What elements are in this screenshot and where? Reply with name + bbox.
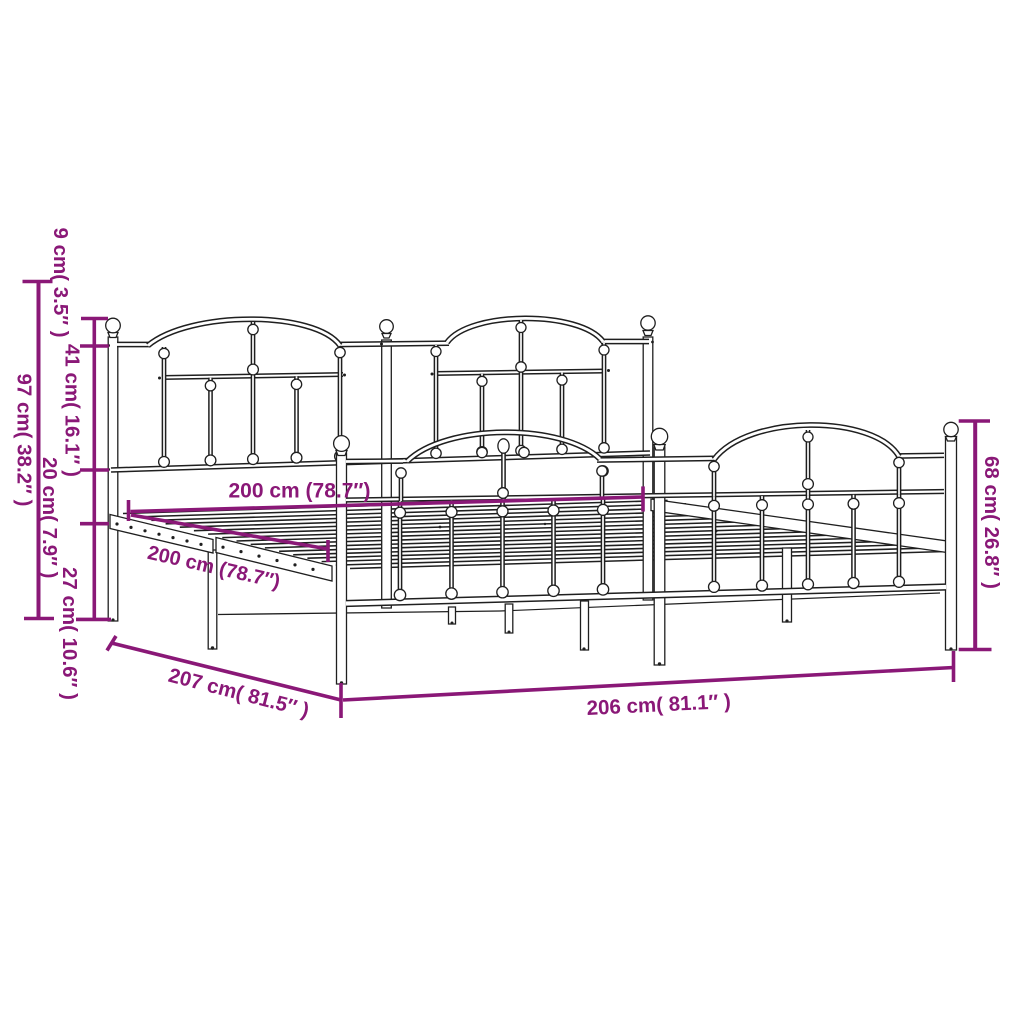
svg-text:41 cm( 16.1″ ): 41 cm( 16.1″ ) [61,344,84,477]
svg-text:200 cm (78.7″): 200 cm (78.7″) [229,480,371,503]
svg-text:27 cm( 10.6″ ): 27 cm( 10.6″ ) [58,567,81,700]
svg-text:97 cm( 38.2″ ): 97 cm( 38.2″ ) [13,374,36,507]
svg-text:9 cm( 3.5″ ): 9 cm( 3.5″ ) [49,228,72,338]
svg-text:20 cm( 7.9″ ): 20 cm( 7.9″ ) [38,457,61,579]
svg-text:68 cm( 26.8″ ): 68 cm( 26.8″ ) [980,456,1003,589]
